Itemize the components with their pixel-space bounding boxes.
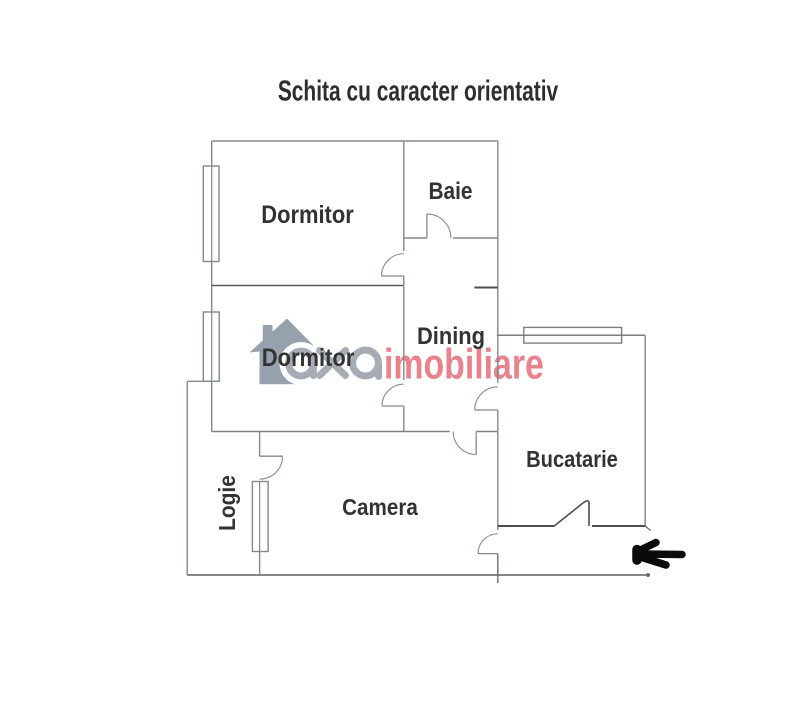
svg-text:Dining: Dining [417,322,485,349]
svg-text:Dormitor: Dormitor [262,344,355,372]
svg-text:Dormitor: Dormitor [261,201,354,229]
svg-text:Camera: Camera [342,494,419,520]
svg-text:Logie: Logie [214,475,240,531]
svg-text:Baie: Baie [428,178,472,205]
svg-text:Schita cu caracter orientativ: Schita cu caracter orientativ [278,75,558,107]
svg-text:Bucatarie: Bucatarie [526,446,618,473]
